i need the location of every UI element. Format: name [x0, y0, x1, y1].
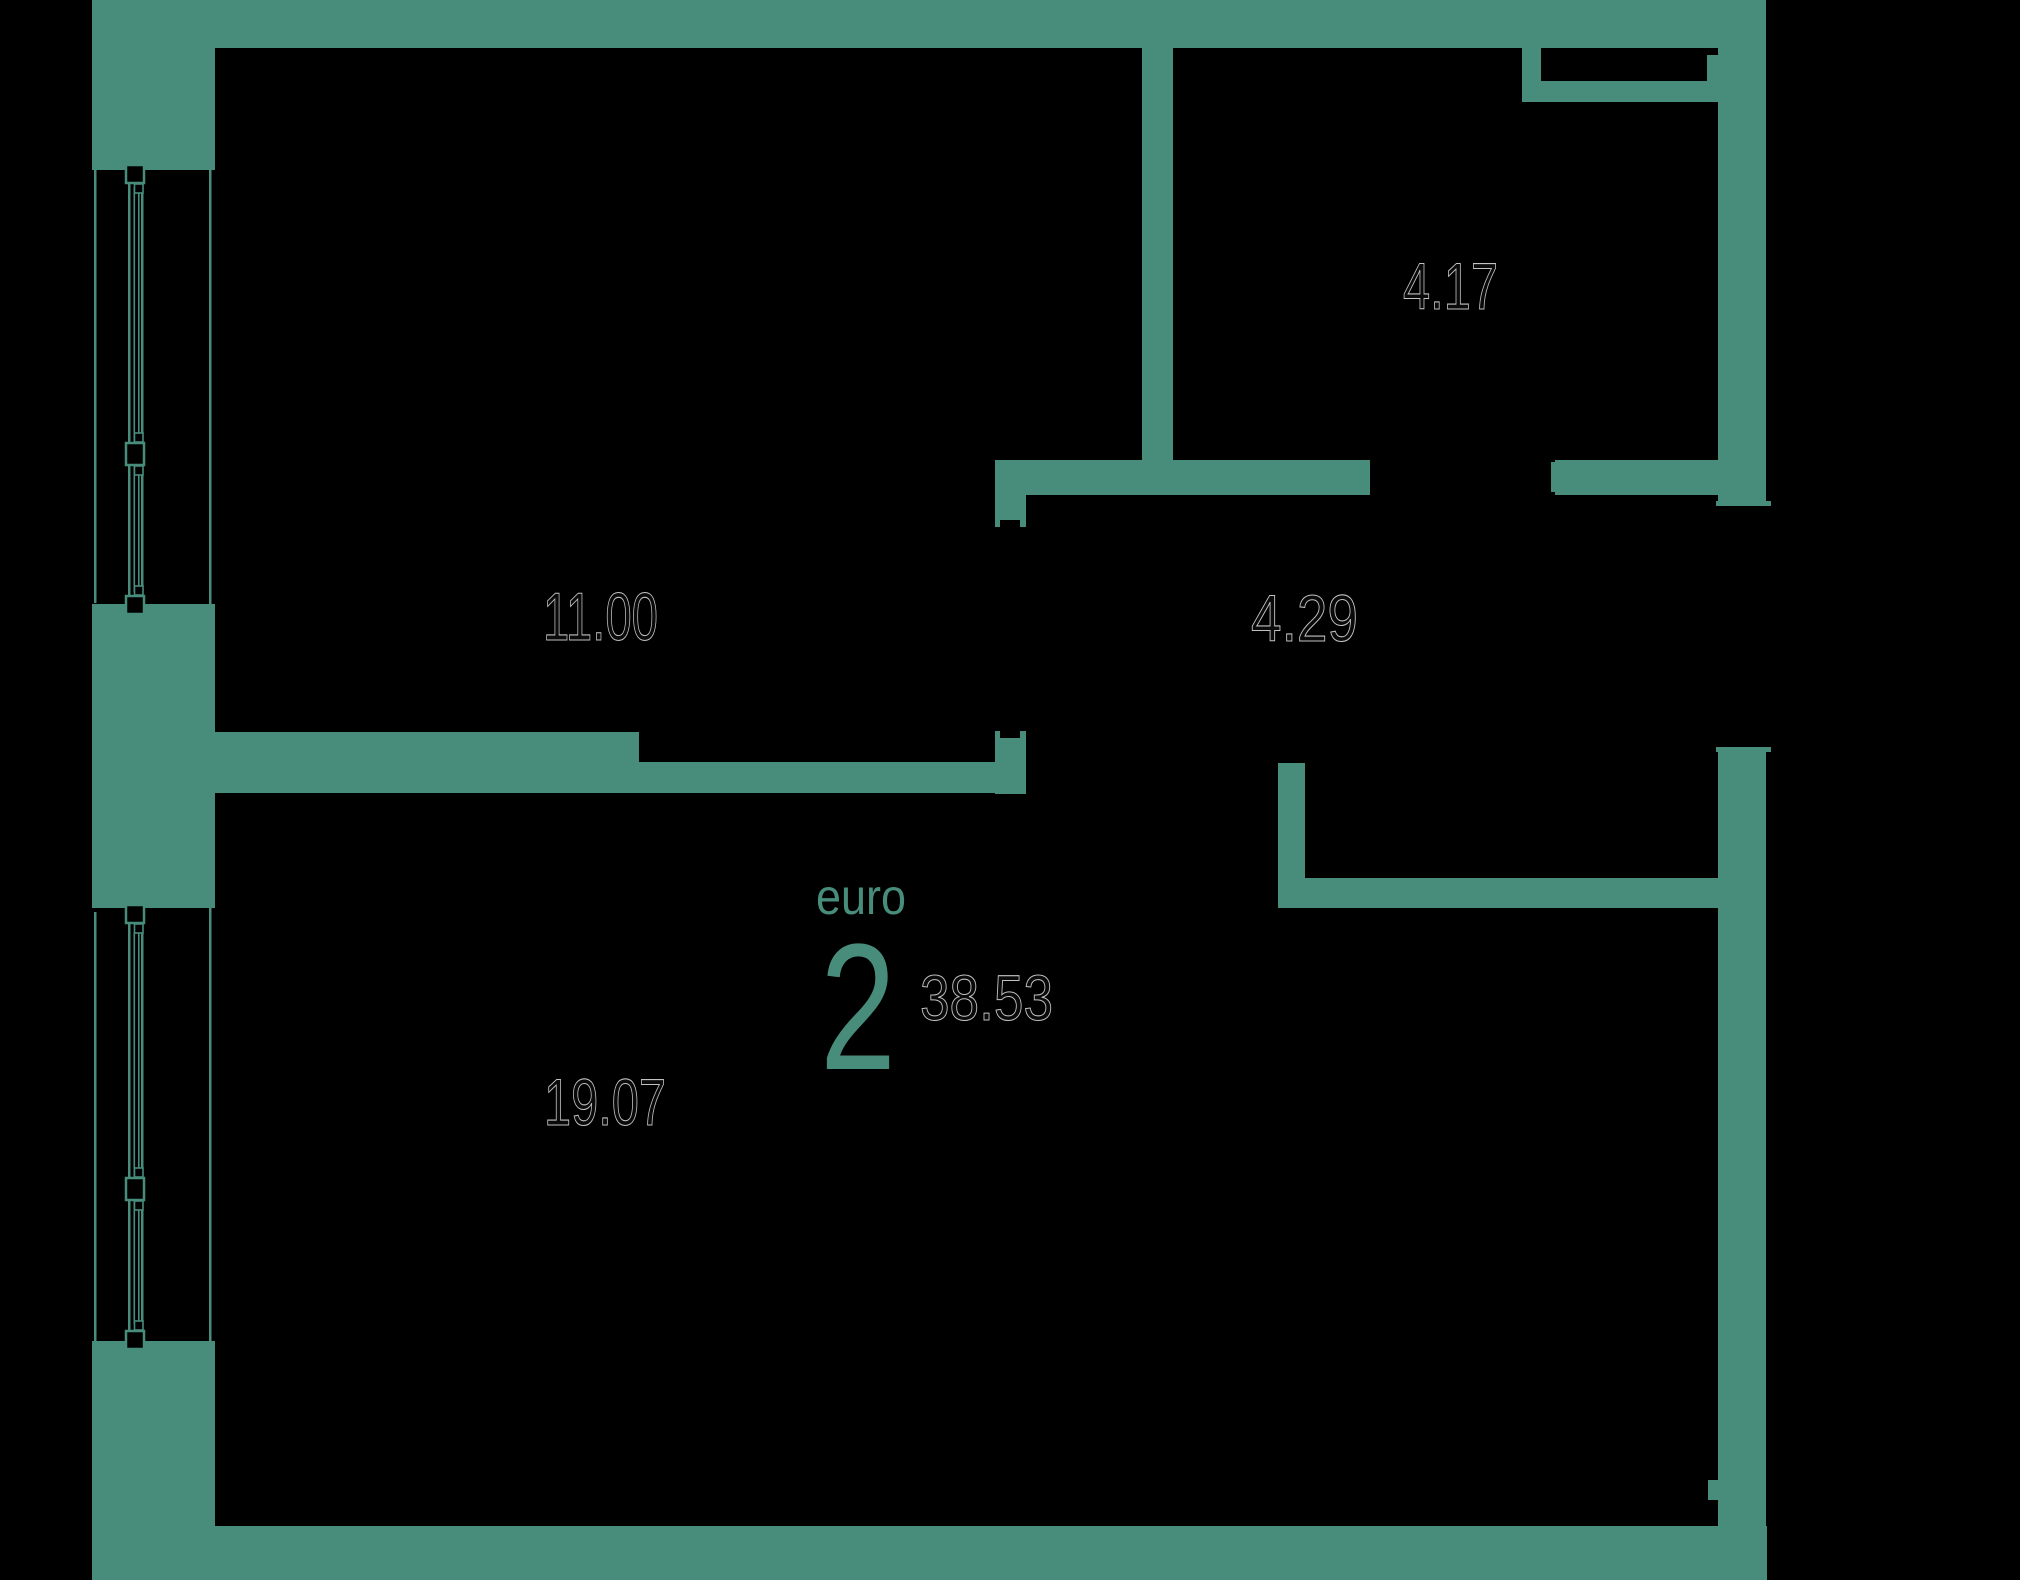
svg-text:38.53: 38.53	[920, 962, 1053, 1034]
svg-text:2: 2	[820, 907, 896, 1108]
svg-text:11.00: 11.00	[543, 579, 658, 655]
svg-text:19.07: 19.07	[544, 1065, 666, 1139]
svg-text:4.17: 4.17	[1403, 249, 1498, 323]
svg-text:4.29: 4.29	[1251, 581, 1358, 655]
